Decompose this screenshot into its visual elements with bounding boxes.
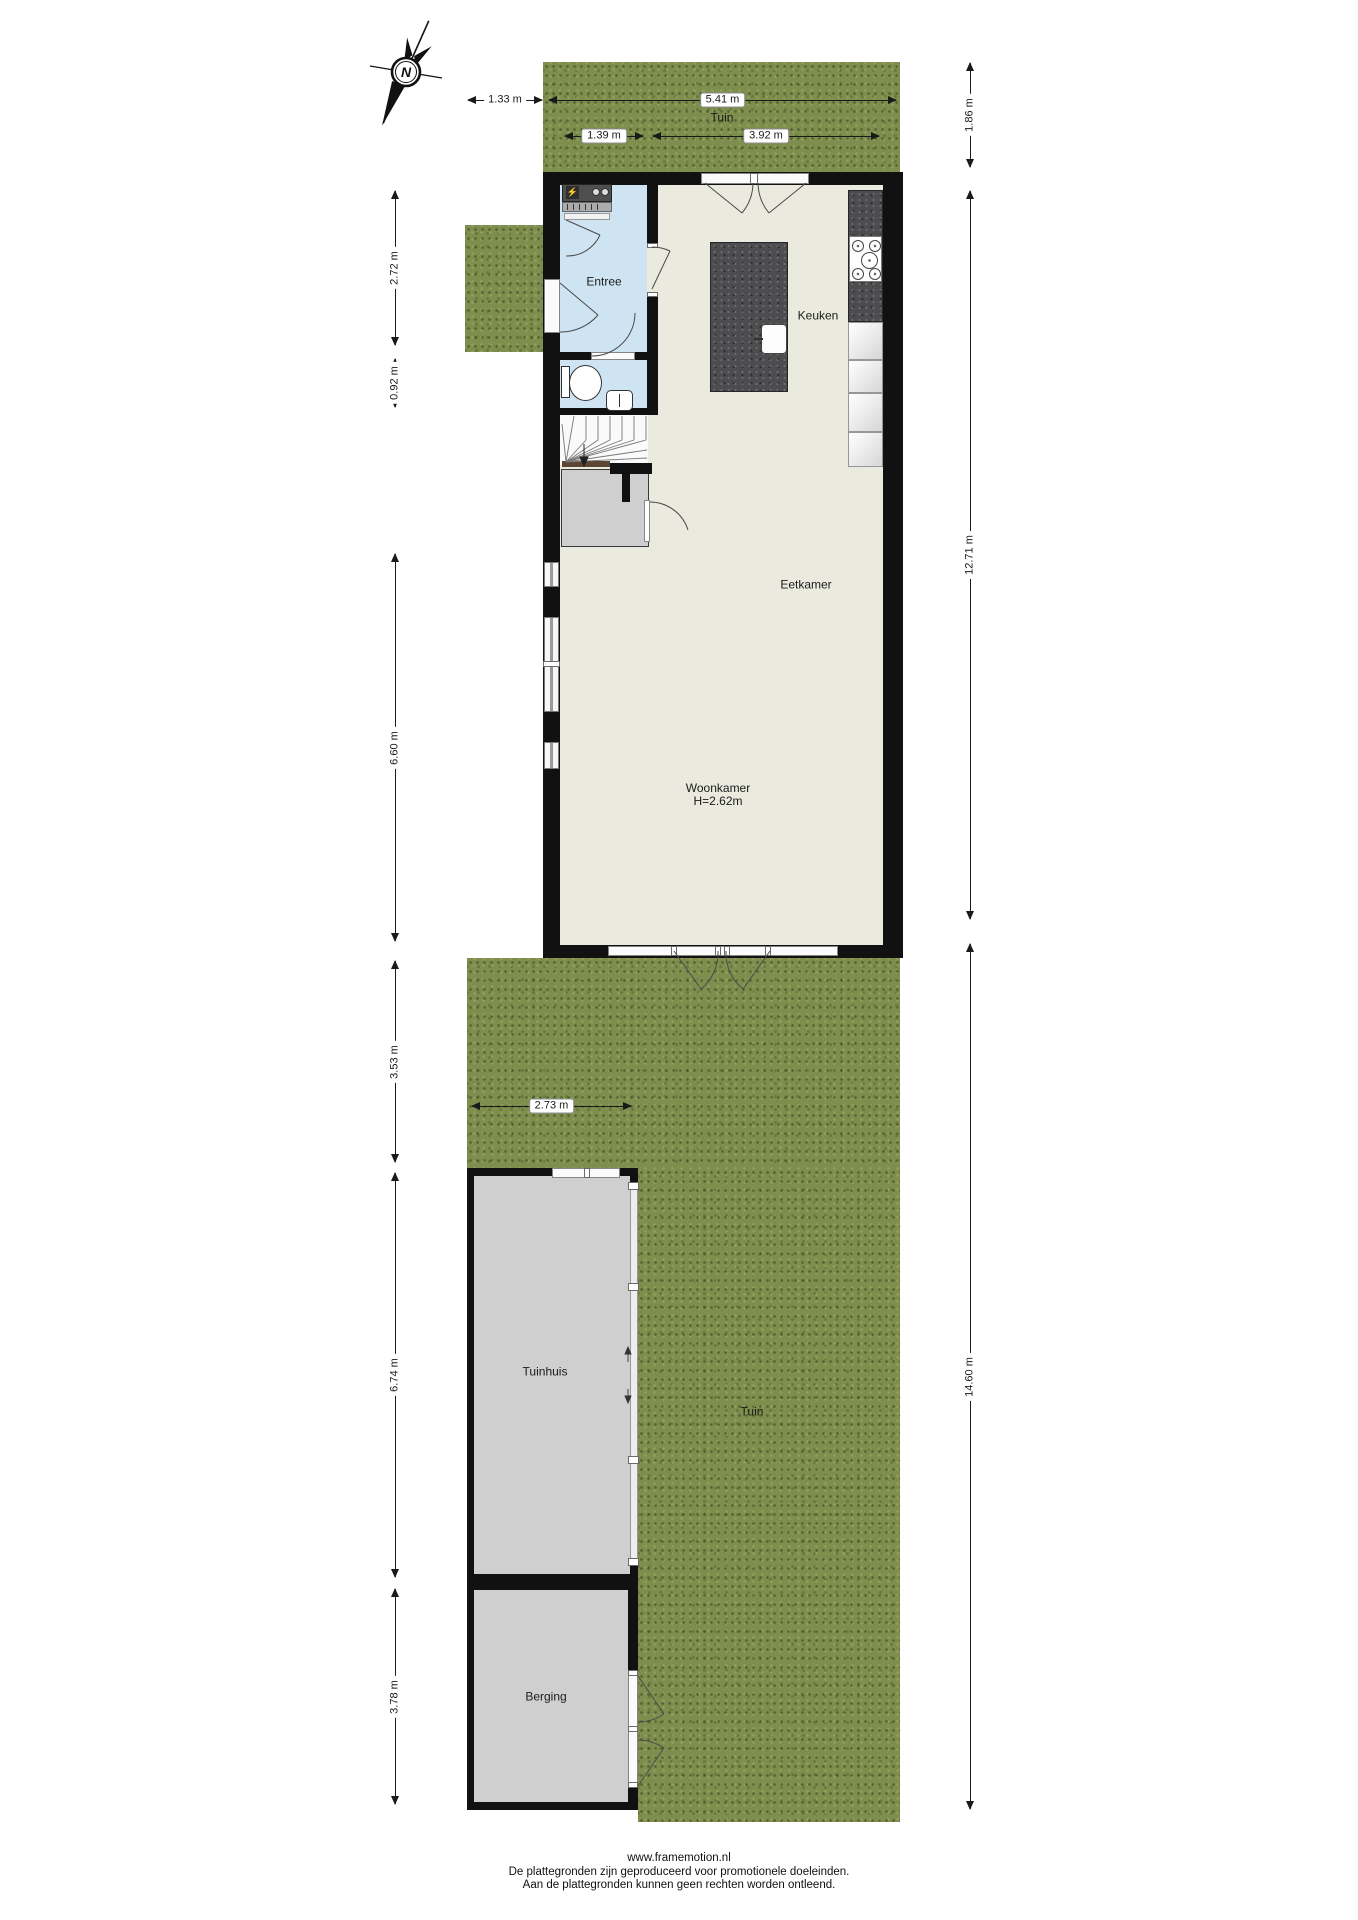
dimension-garden-bottom-depth: 14.60 m: [965, 943, 975, 1810]
arrow-down-icon: [966, 159, 974, 168]
compass-north-label: N: [401, 64, 412, 80]
garden-front-patch: [465, 225, 543, 352]
dimension-berging-depth: 3.78 m: [390, 1588, 400, 1805]
arrow-right-icon: [635, 132, 644, 140]
arrow-down-icon: [391, 1569, 399, 1578]
wall-toilet-stairs: [543, 408, 658, 415]
dimension-house-total-depth: 12.71 m: [965, 190, 975, 920]
dimension-tuinhuis-depth: 6.74 m: [390, 1172, 400, 1578]
arrow-down-icon: [966, 911, 974, 920]
dimension-house-total-width: 5.41 m: [548, 95, 897, 105]
window-left-3: [544, 742, 559, 769]
door-frame-post: [715, 946, 721, 956]
dim-label: 3.53 m: [389, 1041, 402, 1083]
compass-south-spike: [374, 79, 406, 128]
dimension-entree-width: 1.39 m: [564, 131, 644, 141]
arrow-right-icon: [623, 1102, 632, 1110]
closet-door-leaf: [644, 500, 650, 542]
front-door: [544, 279, 560, 333]
slider-handle: [628, 1558, 639, 1566]
arrow-down-icon: [391, 933, 399, 942]
arrow-right-icon: [871, 132, 880, 140]
dim-label: 1.86 m: [964, 94, 977, 136]
tuinhuis-label: Tuinhuis: [523, 1366, 568, 1379]
door-frame-post: [647, 292, 658, 297]
dim-label: 6.60 m: [389, 727, 402, 769]
garden-bottom-upper: [467, 958, 900, 1168]
tuinhuis-glass-wall: [630, 1184, 638, 1566]
kitchen-cabinet: [848, 322, 883, 360]
kitchen-cabinet: [848, 432, 883, 467]
slider-handle: [628, 1283, 639, 1291]
door-frame-post: [647, 243, 658, 248]
dimension-toilet-depth: 0.92 m: [390, 358, 400, 408]
dimension-outside-left-width: 1.33 m: [467, 95, 543, 105]
kitchen-cabinet: [848, 360, 883, 393]
stove: [849, 236, 882, 282]
dim-label: 5.41 m: [700, 93, 746, 108]
wall-stair-stub: [610, 463, 652, 474]
fuse-bolt-icon: ⚡: [566, 186, 579, 199]
window-mullion: [584, 1168, 590, 1178]
wall-entree-kitchen: [647, 185, 658, 415]
toilet-bowl: [569, 365, 602, 401]
footer: www.framemotion.nl De plattegronden zijn…: [0, 1852, 1358, 1893]
meter-dial-icon: [592, 188, 600, 196]
burner-icon: [852, 268, 864, 280]
tuinhuis-corner: [630, 1566, 638, 1580]
dim-label: 14.60 m: [964, 1353, 977, 1401]
slider-handle: [628, 1456, 639, 1464]
burner-icon: [869, 240, 881, 252]
dim-label: 2.73 m: [529, 1099, 575, 1114]
footer-disclaimer-2: Aan de plattegronden kunnen geen rechten…: [0, 1879, 1358, 1893]
window-mullion: [543, 661, 560, 667]
window-left-1: [544, 562, 559, 587]
kitchen-island: [710, 242, 788, 392]
door-frame-post: [628, 1726, 638, 1732]
entree-door-opening: [647, 247, 658, 293]
tuin-bottom-label: Tuin: [741, 1406, 764, 1419]
footer-disclaimer-1: De plattegronden zijn geproduceerd voor …: [0, 1866, 1358, 1880]
arrow-down-icon: [391, 1796, 399, 1805]
stairs-stringer: [562, 461, 610, 467]
dim-label: 12.71 m: [964, 531, 977, 579]
keuken-label: Keuken: [798, 310, 839, 323]
meter-cabinet-sill: [564, 213, 610, 220]
arrow-down-icon: [391, 337, 399, 346]
garden-bottom-right: [638, 1168, 900, 1822]
dim-label: 6.74 m: [389, 1354, 402, 1396]
meter-dial-icon: [601, 188, 609, 196]
wall-closet-stub: [622, 474, 630, 502]
door-frame-post: [724, 946, 730, 956]
dimension-garden-to-tuinhuis: 3.53 m: [390, 960, 400, 1163]
dimension-keuken-width: 3.92 m: [652, 131, 880, 141]
basin-tap-icon: [619, 394, 620, 407]
arrow-down-icon: [391, 1154, 399, 1163]
meter-terminal-row: [567, 204, 599, 210]
slider-handle: [628, 1182, 639, 1190]
burner-icon: [852, 240, 864, 252]
door-frame-post: [765, 946, 771, 956]
dimension-entree-depth: 2.72 m: [390, 190, 400, 346]
dim-label: 3.78 m: [389, 1676, 402, 1718]
island-sink: [761, 324, 787, 354]
dimension-tuinhuis-width: 2.73 m: [471, 1101, 632, 1111]
eetkamer-label: Eetkamer: [780, 579, 831, 592]
woonkamer-ceiling-height: H=2.62m: [686, 795, 750, 808]
footer-url: www.framemotion.nl: [0, 1852, 1358, 1866]
dim-label: 1.39 m: [581, 129, 627, 144]
dimension-woonkamer-depth: 6.60 m: [390, 553, 400, 942]
dimension-garden-top-depth: 1.86 m: [965, 62, 975, 168]
stairs: [560, 415, 648, 465]
door-frame-post: [750, 173, 758, 184]
door-frame-post: [671, 946, 677, 956]
dim-label: 2.72 m: [389, 247, 402, 289]
compass-north-arrow: N: [350, 10, 462, 142]
kitchen-cabinet: [848, 393, 883, 432]
burner-icon: [869, 268, 881, 280]
arrow-down-icon: [966, 1801, 974, 1810]
dim-label: 1.33 m: [484, 94, 526, 107]
berging-label: Berging: [525, 1691, 566, 1704]
arrow-right-icon: [534, 96, 543, 104]
door-frame-post: [628, 1670, 638, 1676]
woonkamer-label: Woonkamer H=2.62m: [686, 782, 750, 808]
dim-label: 3.92 m: [743, 129, 789, 144]
burner-icon: [861, 252, 878, 269]
patio-doors-bottom-frame: [608, 946, 838, 956]
entree-label: Entree: [586, 276, 621, 289]
tuin-top-label: Tuin: [711, 112, 734, 125]
door-frame-post: [628, 1782, 638, 1788]
dim-label: 0.92 m: [389, 362, 402, 404]
stairs-closet: [562, 470, 648, 546]
floorplan-canvas: N ⚡: [0, 0, 1358, 1920]
toilet-door-leaf: [591, 352, 635, 360]
sink-faucet-icon: [754, 338, 763, 340]
arrow-right-icon: [888, 96, 897, 104]
